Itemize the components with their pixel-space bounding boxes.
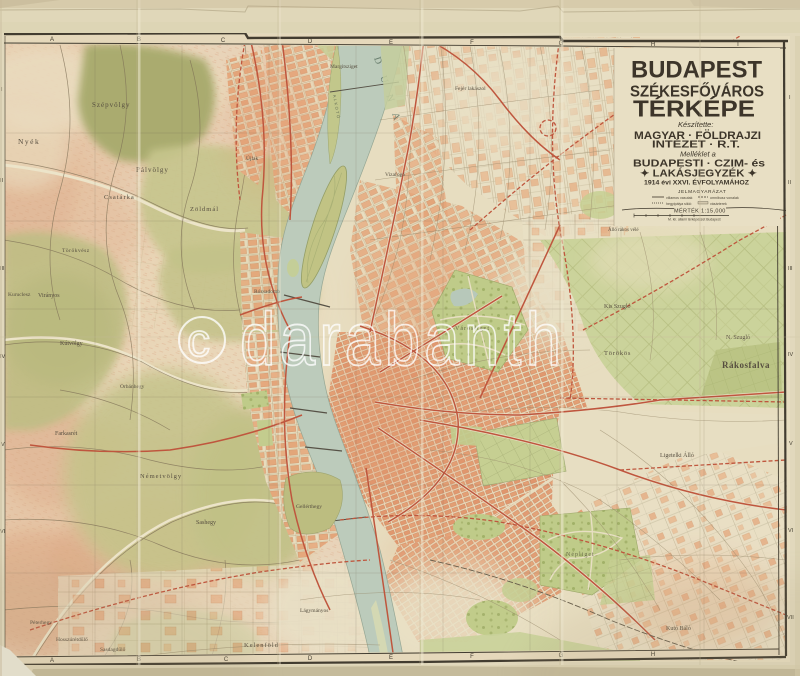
- svg-text:darabanth: darabanth: [240, 297, 565, 381]
- svg-text:c: c: [187, 314, 210, 366]
